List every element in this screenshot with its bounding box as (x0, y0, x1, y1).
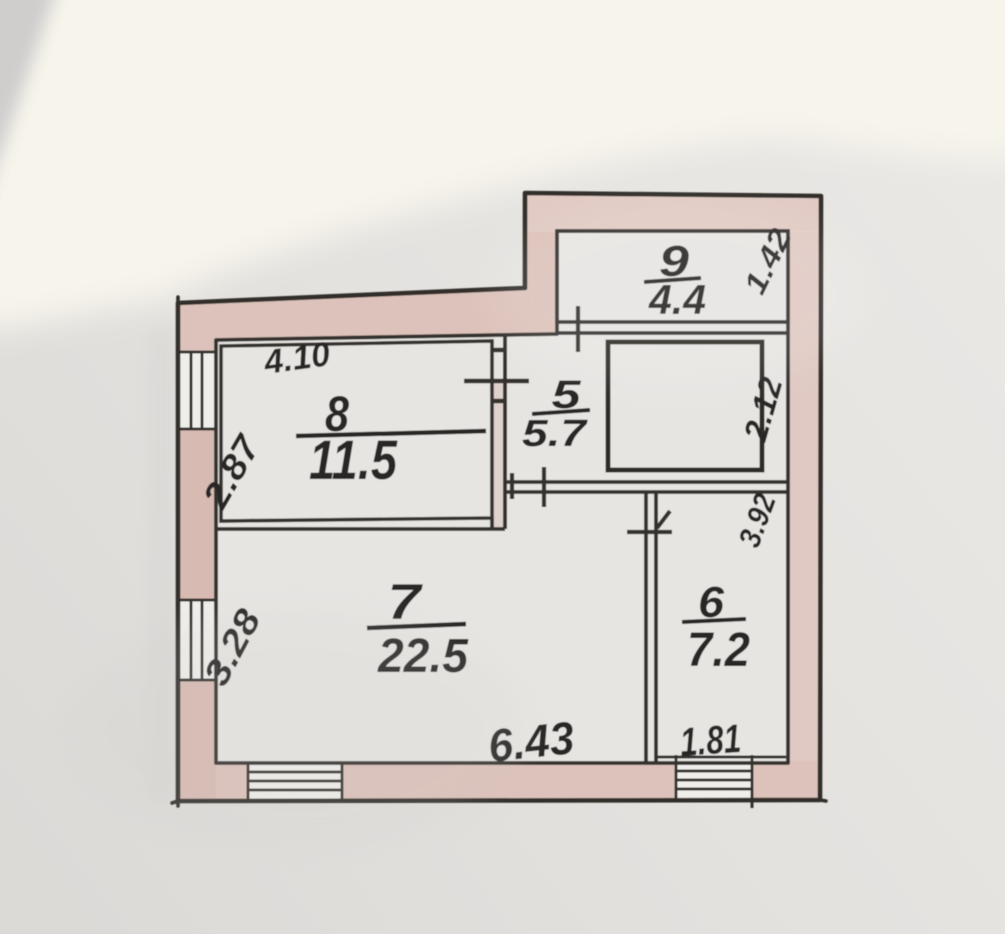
svg-text:5.7: 5.7 (522, 413, 588, 455)
svg-text:7.2: 7.2 (687, 624, 750, 677)
svg-text:1.81: 1.81 (679, 717, 743, 765)
svg-text:11.5: 11.5 (309, 428, 398, 491)
